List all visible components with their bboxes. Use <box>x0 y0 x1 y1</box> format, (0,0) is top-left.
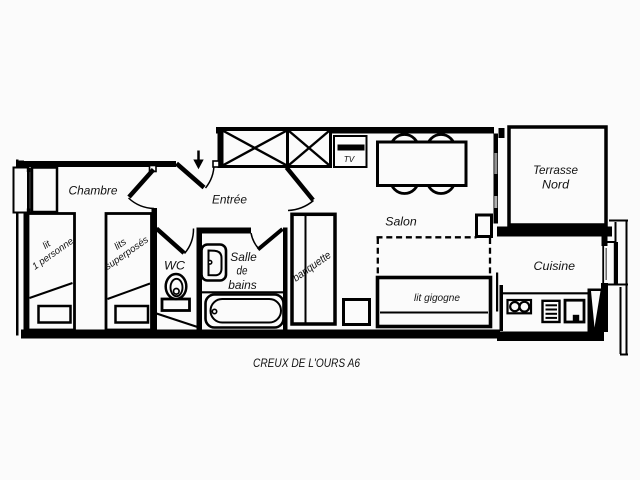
svg-text:bains: bains <box>228 278 257 292</box>
svg-text:Terrasse: Terrasse <box>533 163 578 177</box>
svg-text:Nord: Nord <box>542 177 569 191</box>
svg-text:Cuisine: Cuisine <box>534 259 576 273</box>
svg-text:TV: TV <box>344 154 356 164</box>
svg-text:WC: WC <box>164 258 185 272</box>
svg-text:Entrée: Entrée <box>212 192 247 206</box>
svg-text:CREUX DE L'OURS A6: CREUX DE L'OURS A6 <box>253 356 360 370</box>
svg-text:Salle: Salle <box>230 250 257 264</box>
svg-text:lit gigogne: lit gigogne <box>414 292 460 304</box>
svg-text:de: de <box>237 264 248 278</box>
svg-text:Chambre: Chambre <box>69 183 118 197</box>
svg-text:Salon: Salon <box>385 214 417 228</box>
